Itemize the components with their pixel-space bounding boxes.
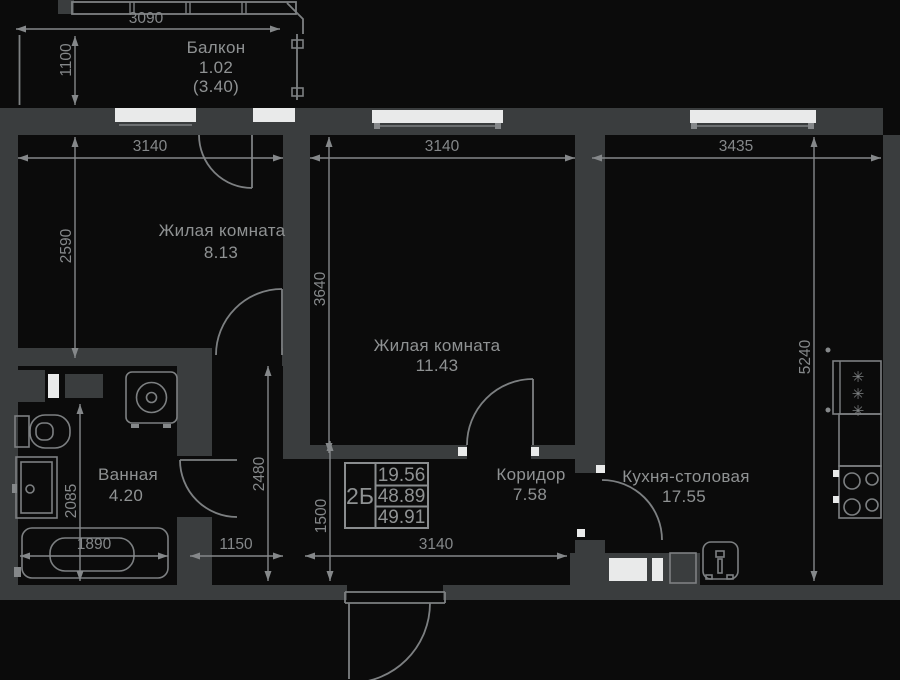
balcony-glazing-frame (72, 2, 296, 14)
label-bathroom: Ванная (98, 465, 158, 484)
snowflake-icon: ✳ (852, 386, 865, 403)
kitchen-niche-right (652, 558, 663, 581)
wall-living1-living2 (283, 135, 310, 445)
stamp-total-area: 49.91 (378, 507, 426, 528)
dim-living2-width: 3140 (310, 138, 575, 162)
toilet (15, 415, 70, 448)
shaft-block-right (65, 374, 103, 398)
stamp-unit-type: 2Б (346, 483, 374, 509)
sill-end-mark (495, 123, 501, 129)
label-corridor: Коридор (496, 465, 565, 484)
snowflake-icon: ✳ (852, 403, 865, 420)
balcony-corner (287, 3, 303, 34)
dim-corridor-depth: 1500 (313, 441, 334, 581)
dim-hall-depth: 2480 (251, 366, 272, 581)
label-balcony-area: 1.02 (199, 58, 233, 77)
wall-left (0, 135, 18, 600)
wall-living2-kitchen (575, 135, 605, 473)
label-living1-area: 8.13 (204, 243, 238, 262)
washbasin (12, 457, 57, 518)
walls (0, 0, 900, 600)
sill-end-mark (808, 123, 814, 129)
svg-text:3140: 3140 (425, 138, 460, 155)
door-living1 (216, 289, 282, 355)
wall-bottom-left (0, 585, 347, 600)
svg-text:3140: 3140 (133, 138, 168, 155)
wall-living1-bottom-stub (282, 348, 310, 366)
fridge: ✳ ✳ ✳ (833, 361, 881, 420)
dimensions: 3090 1100 3140 2590 3140 (16, 10, 881, 581)
svg-text:3640: 3640 (312, 271, 329, 306)
label-kitchen-area: 17.55 (662, 487, 706, 506)
label-living2: Жилая комната (374, 336, 501, 355)
dim-living1-width: 3140 (18, 138, 283, 162)
floor-plan-page: ✳ ✳ ✳ (0, 0, 900, 680)
stamp-apartment-area: 48.89 (378, 486, 426, 507)
wall-bathroom-right-upper (177, 362, 212, 456)
svg-text:2590: 2590 (58, 228, 75, 263)
stamp-table: 2Б 19.56 48.89 49.91 (345, 463, 428, 528)
wall-bathroom-right-lower (177, 517, 212, 585)
stamp-living-area: 19.56 (378, 465, 426, 486)
svg-text:5240: 5240 (797, 339, 814, 374)
door-arc (216, 289, 282, 355)
door-arc (602, 480, 662, 540)
washing-machine (126, 372, 177, 428)
svg-text:1150: 1150 (219, 536, 253, 553)
window-balcony-side (253, 108, 295, 122)
door-kitchen (602, 480, 662, 540)
dim-bathroom-depth: 2085 (63, 404, 84, 581)
dim-bathtub-width: 1890 (20, 536, 168, 560)
marker-dot (826, 348, 831, 353)
dim-corridor-width: 3140 (305, 536, 567, 560)
dim-balcony-depth: 1100 (58, 36, 79, 105)
sill-end-mark (374, 123, 380, 129)
dim-living2-depth: 3640 (312, 137, 333, 453)
kitchen-counter (839, 414, 881, 466)
label-balcony: Балкон (187, 38, 246, 57)
dim-kitchen-width: 3435 (592, 138, 881, 162)
svg-text:3140: 3140 (419, 536, 454, 553)
floor-plan-drawing: ✳ ✳ ✳ (0, 0, 900, 680)
shaft-block-left (13, 370, 45, 402)
door-frame-mark (577, 529, 585, 537)
window-living1-balcony (115, 108, 196, 122)
svg-text:1100: 1100 (58, 43, 75, 77)
door-arc (467, 379, 533, 445)
door-entry (345, 592, 445, 680)
label-corridor-area: 7.58 (513, 485, 547, 504)
dim-living1-depth: 2590 (58, 137, 79, 358)
svg-text:3435: 3435 (719, 138, 753, 155)
door-frame-mark (596, 465, 605, 473)
wall-right (883, 135, 900, 600)
svg-text:3090: 3090 (129, 10, 164, 27)
label-kitchen: Кухня-столовая (622, 467, 750, 486)
svg-text:2480: 2480 (251, 456, 268, 491)
door-balcony (199, 135, 252, 188)
door-living2 (467, 379, 533, 445)
door-arc (199, 135, 252, 188)
dim-kitchen-depth: 5240 (797, 137, 818, 581)
sill-end-mark (691, 123, 697, 129)
stove (833, 466, 881, 518)
svg-text:2085: 2085 (63, 484, 80, 518)
svg-text:1500: 1500 (313, 498, 330, 533)
marker-dot (826, 408, 831, 413)
door-bathroom (180, 460, 237, 517)
window-kitchen (690, 110, 816, 123)
label-living2-area: 11.43 (416, 356, 459, 375)
window-living2 (372, 110, 503, 123)
shaft-opening (48, 374, 59, 398)
wall-bottom-right (443, 585, 883, 600)
door-arc (349, 603, 430, 680)
label-bathroom-area: 4.20 (109, 486, 143, 505)
wall-living2-bottom-left (283, 445, 467, 459)
kitchen-sink (703, 542, 738, 579)
label-balcony-area-total: (3.40) (193, 77, 239, 96)
door-frame-mark (531, 447, 539, 456)
door-frame-mark (458, 447, 467, 456)
kitchen-niche-left (609, 558, 647, 581)
door-arc (180, 460, 237, 517)
snowflake-icon: ✳ (852, 369, 865, 386)
svg-text:1890: 1890 (77, 536, 112, 553)
label-living1: Жилая комната (159, 221, 286, 240)
